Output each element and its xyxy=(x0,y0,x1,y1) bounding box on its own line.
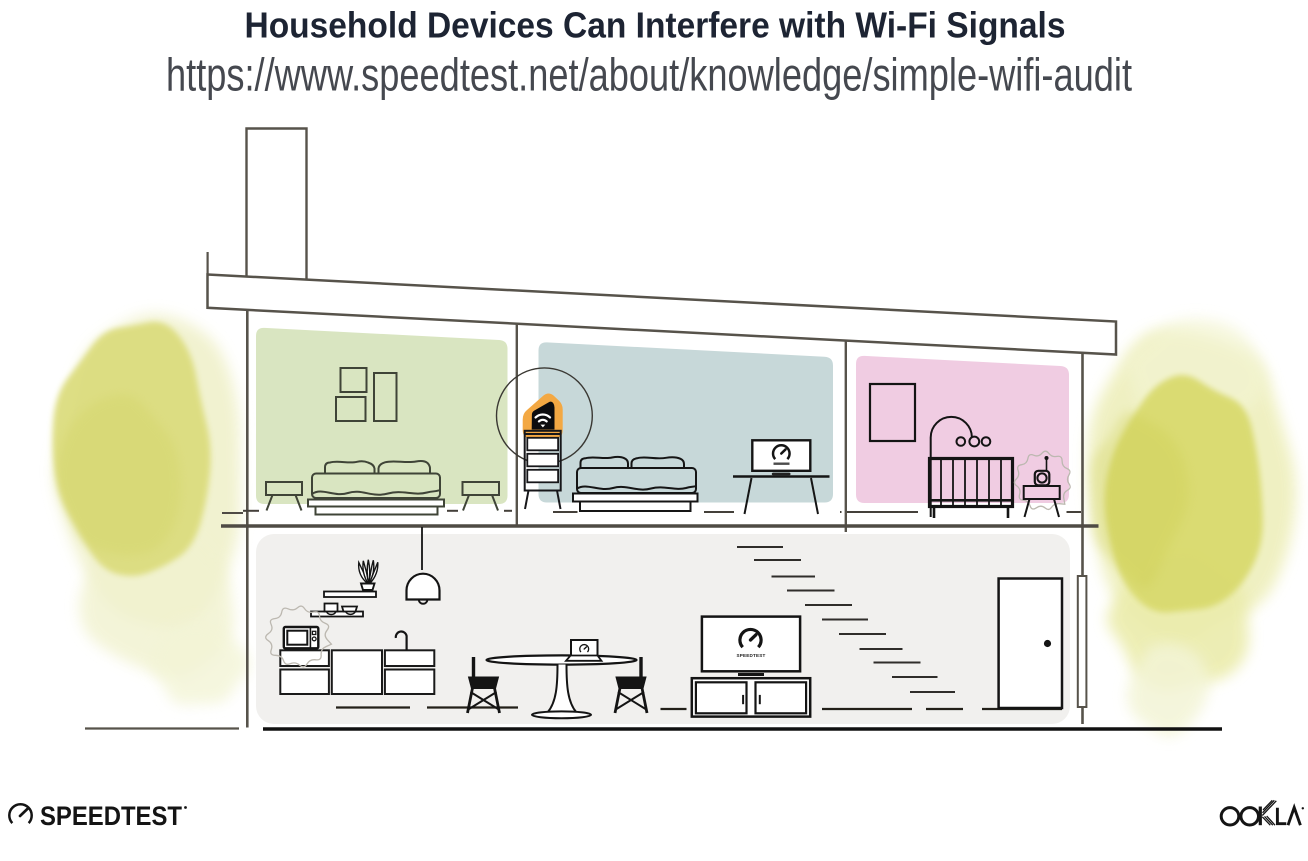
svg-text:Household Devices Can Interfer: Household Devices Can Interfere with Wi-… xyxy=(245,5,1066,46)
svg-text:https://www.speedtest.net/abou: https://www.speedtest.net/about/knowledg… xyxy=(166,49,1132,101)
svg-text:SPEEDTEST: SPEEDTEST xyxy=(40,801,182,831)
svg-text:SPEEDTEST: SPEEDTEST xyxy=(736,653,765,658)
